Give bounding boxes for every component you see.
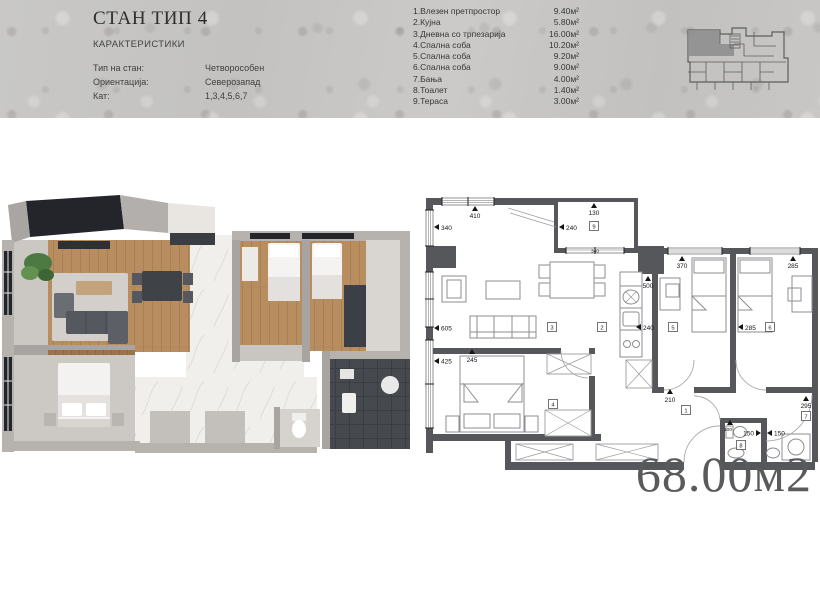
dim-label: 150: [774, 431, 785, 438]
desk-2d: [660, 278, 680, 310]
spec-row-type: Тип на стан:Четворособен: [93, 61, 264, 75]
list-item: 8.Тоалет1.40м²: [413, 85, 579, 96]
wardrobe-3d: [344, 285, 368, 347]
toilet-3d: [342, 393, 356, 413]
room-area-list: 1.Влезен претпростор9.40м² 2.Кујна5.80м²…: [413, 6, 579, 108]
room-name: 3.Дневна со трпезарија: [413, 29, 505, 40]
list-item: 3.Дневна со трпезарија16.00м²: [413, 29, 579, 40]
room-name: 6.Спална соба: [413, 62, 471, 73]
sofa-2d: [470, 316, 536, 338]
dim-label: 240: [643, 325, 654, 332]
coffee-table-3d: [76, 281, 112, 295]
dim-label: 370: [677, 263, 688, 270]
room-area: 9.00м²: [554, 62, 579, 73]
dim-label: 340: [591, 249, 599, 255]
room-area: 9.20м²: [554, 51, 579, 62]
list-item: 7.Бања4.00м²: [413, 74, 579, 85]
shower-3d: [381, 376, 399, 394]
room-number: 9: [592, 225, 595, 231]
room-area: 5.80м²: [554, 17, 579, 28]
nightstand-2d: [525, 416, 538, 432]
dim-label: 240: [566, 225, 577, 232]
list-item: 9.Тераса3.00м²: [413, 96, 579, 107]
desk-2d: [792, 276, 812, 312]
floorplan-3d-render: [0, 145, 412, 565]
tv-console: [58, 241, 110, 249]
toilet-room-3d: [274, 407, 320, 449]
room-name: 8.Тоалет: [413, 85, 447, 96]
dining-table-2d: [550, 262, 594, 298]
total-area-text: 68.00м2: [552, 449, 812, 499]
room-number: 6: [768, 326, 771, 332]
kitchen-counter-3d: [170, 233, 215, 245]
list-item: 5.Спална соба9.20м²: [413, 51, 579, 62]
room-name: 4.Спална соба: [413, 40, 471, 51]
room-area: 1.40м²: [554, 85, 579, 96]
master-bedroom-3d: [4, 345, 140, 451]
dim-label: 425: [441, 359, 452, 366]
spec-value: Четворособен: [205, 63, 264, 73]
room-number: 5: [671, 326, 674, 332]
room-name: 2.Кујна: [413, 17, 441, 28]
nightstand-2d: [446, 416, 459, 432]
spec-label: Ориентација:: [93, 75, 205, 89]
spec-label: Тип на стан:: [93, 61, 205, 75]
dim-label: 130: [589, 210, 600, 217]
bed-2d: [738, 258, 772, 332]
spec-table: Тип на стан:Четворособен Ориентација:Сев…: [93, 61, 264, 103]
page-title: СТАН ТИП 4: [93, 8, 208, 30]
dim-label: 340: [441, 225, 452, 232]
room-area: 9.40м²: [554, 6, 579, 17]
room-name: 5.Спална соба: [413, 51, 471, 62]
bathroom-3d: [322, 351, 410, 449]
spec-label: Кат:: [93, 89, 205, 103]
room-number: 7: [804, 415, 807, 421]
dim-label: 210: [665, 397, 676, 404]
list-item: 4.Спална соба10.20м²: [413, 40, 579, 51]
dim-label: 500: [643, 283, 654, 290]
list-item: 2.Кујна5.80м²: [413, 17, 579, 28]
dim-label: 285: [788, 263, 799, 270]
characteristics-heading: КАРАКТЕРИСТИКИ: [93, 39, 185, 50]
room-name: 9.Тераса: [413, 96, 448, 107]
room-name: 7.Бања: [413, 74, 442, 85]
room-number: 2: [600, 326, 603, 332]
spec-row-orientation: Ориентација:Северозапад: [93, 75, 264, 89]
spec-row-floor: Кат:1,3,4,5,6,7: [93, 89, 264, 103]
building-location-plan-icon: [676, 20, 790, 104]
room-number: 1: [684, 409, 687, 415]
room-area: 16.00м²: [549, 29, 579, 40]
bed-2d: [692, 258, 726, 332]
spec-value: 1,3,4,5,6,7: [205, 91, 248, 101]
coffee-table-2d: [486, 281, 520, 299]
list-item: 1.Влезен претпростор9.40м²: [413, 6, 579, 17]
room-name: 1.Влезен претпростор: [413, 6, 500, 17]
dining-table-3d: [142, 271, 182, 301]
list-item: 6.Спална соба9.00м²: [413, 62, 579, 73]
dim-label: 285: [745, 325, 756, 332]
apartment-datasheet-page: СТАН ТИП 4 КАРАКТЕРИСТИКИ Тип на стан:Че…: [0, 0, 820, 600]
header-concrete-band: СТАН ТИП 4 КАРАКТЕРИСТИКИ Тип на стан:Че…: [0, 0, 820, 118]
spec-value: Северозапад: [205, 77, 260, 87]
room-area: 3.00м²: [554, 96, 579, 107]
dim-label: 605: [441, 326, 452, 333]
toilet-3d: [292, 420, 306, 438]
dim-label: 410: [470, 213, 481, 220]
room-number: 3: [550, 326, 553, 332]
dim-label: 245: [467, 357, 478, 364]
living-glazing-slab: [26, 195, 124, 237]
room-area: 4.00м²: [554, 74, 579, 85]
room-area: 10.20м²: [549, 40, 579, 51]
dim-label: 295: [801, 403, 812, 410]
dim-label: 100: [724, 427, 732, 433]
dim-label: 150: [743, 431, 754, 438]
